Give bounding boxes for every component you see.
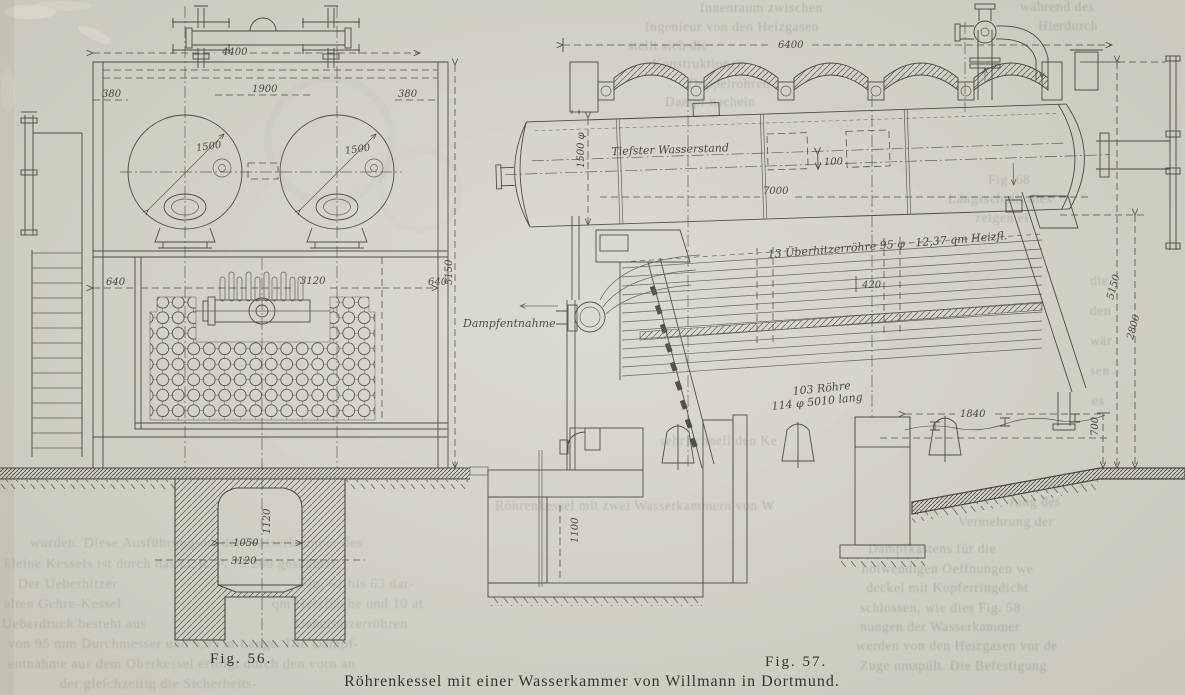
bleed-line: den [1090, 303, 1111, 318]
bleed-line: Hierdurch [1038, 18, 1098, 33]
dim-4400: 4400 [221, 47, 248, 58]
feed-standpipe [21, 112, 37, 235]
ladder [32, 133, 82, 457]
bleed-line: nungen der Wasserkammer [860, 619, 1020, 634]
dim-6400: 6400 [778, 40, 804, 51]
bleed-line: es [1092, 393, 1104, 408]
bleed-line: sen [1090, 363, 1110, 378]
bleed-line: der gleichzeitig die Sicherheits- [60, 677, 257, 692]
tube-bank-grid [150, 297, 375, 420]
bleed-line: deckel mit Kupferringdicht [866, 580, 1029, 595]
dim-3120-pit: 3120 [231, 556, 257, 567]
boiler-plate-drawing: Innenraum zwischen während des Ingenieur… [0, 0, 1185, 695]
dim-1500-dia: 1500 φ [576, 132, 587, 168]
fig57-label: Fig. 57. [765, 654, 827, 670]
bleed-line: Zuge umspült. Die Befestigung [860, 658, 1047, 673]
bleed-line: Fig. 68 [988, 172, 1030, 187]
tube-support: 1840 [880, 409, 1110, 438]
label-tiefster-wasserstand: Tiefster Wasserstand [611, 141, 729, 158]
bleed-line: kleine Kessels ist durch das D. R. P. 73… [4, 557, 340, 572]
steam-takeoff-nozzle: Dampfentnahme [462, 302, 605, 332]
bleed-line: stellt sich die [628, 38, 708, 53]
dim-1500-right: 1500 [344, 143, 371, 158]
scanned-book-page: Innenraum zwischen während des Ingenieur… [0, 0, 1185, 695]
bleed-line: Längsschnitt dies [948, 191, 1052, 206]
label-dampfentnahme: Dampfentnahme [462, 317, 556, 330]
bleed-line: während des [1020, 0, 1094, 14]
bleed-line: Ingenieur von den Heizgasen [645, 19, 819, 34]
dim-420: 420 [861, 280, 882, 291]
dim-380-left: 380 [102, 89, 122, 100]
dim-1050: 1050 [233, 538, 259, 549]
fig57-longitudinal-section: 6400 [462, 4, 1185, 606]
dim-700: 700 [1090, 416, 1101, 436]
steam-valve-assembly [955, 4, 1048, 100]
bleed-line: entnahme aus dem Oberkessel erfolgt durc… [8, 657, 355, 672]
plate-caption: Röhrenkessel mit einer Wasserkammer von … [344, 673, 840, 690]
bleed-line: werden von den Heizgasen vor de [856, 638, 1058, 653]
dim-7000: 7000 [763, 186, 789, 197]
brick-pillar-left [570, 62, 598, 112]
bleed-line: die [1090, 273, 1108, 288]
bleed-line: Vermehrung der [958, 514, 1054, 529]
dim-2800: 2800 [1125, 313, 1143, 342]
dim-1500-left: 1500 [195, 140, 222, 155]
steam-pipe-assembly [172, 6, 360, 68]
tube-bank-section: 13 Überhitzerröhre 95 φ · 12,37 qm Heizf… [620, 228, 1042, 380]
bleed-line: Der Ueberhitzer [18, 577, 118, 592]
dim-1840: 1840 [960, 409, 986, 420]
bleed-line: alten Gehre-Kessel [4, 597, 122, 612]
gauge-piping [1085, 56, 1180, 250]
fig56-label: Fig. 56. [210, 651, 272, 667]
bleed-line: Innenraum zwischen [700, 0, 823, 15]
bleed-line: Dampfkastens für die [868, 541, 996, 556]
dim-1120: 1120 [262, 508, 273, 534]
dim-3120: 3120 [300, 276, 326, 287]
dim-640-left: 640 [106, 277, 126, 288]
dim-1100: 1100 [570, 517, 581, 543]
dim-5150-fig56: 5150 [444, 259, 455, 285]
bleed-line: Ueberdruck besteht aus [2, 617, 147, 632]
dim-1900: 1900 [252, 84, 278, 95]
bleed-line: wär [1090, 333, 1112, 348]
bleed-line: schlossen, wie dies Fig. 58 [860, 600, 1021, 615]
bleed-line: Dampf nachein [665, 94, 756, 109]
label-superheater-tubes: 13 Überhitzerröhre 95 φ · 12,37 qm Heizf… [767, 228, 1008, 261]
dim-380-right: 380 [398, 89, 418, 100]
fig56-front-section: 4400 380 1900 380 1500 1500 [0, 6, 470, 648]
dim-100: 100 [824, 156, 844, 168]
